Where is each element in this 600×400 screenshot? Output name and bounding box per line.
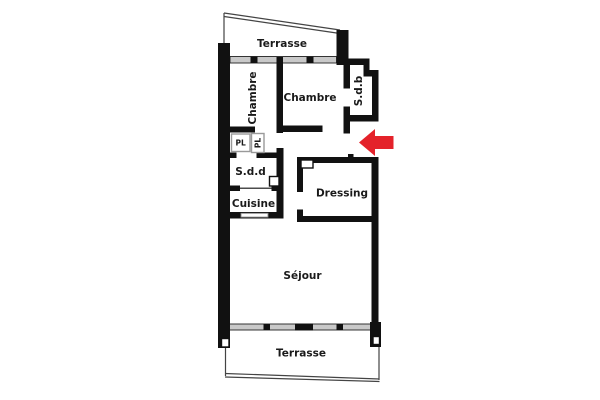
pillar-hole-left: [222, 339, 230, 348]
wall-cuisine-top-seg1: [230, 186, 240, 192]
wall-sdb-left-upper: [344, 65, 351, 89]
room-label-terrasse-top: Terrasse: [257, 38, 307, 50]
room-label-chambre-right: Chambre: [283, 92, 336, 104]
terrace-top-edge-line: [224, 13, 340, 30]
wall-sdd-top-seg2: [257, 153, 277, 159]
closet-label-pl-left: PL: [236, 139, 246, 148]
pillar-top-right: [337, 30, 349, 59]
window-band-top: [230, 57, 337, 64]
wall-sdd-top-seg1: [230, 153, 237, 159]
floor-plan-drawing: Terrasse Chambre Chambre S.d.b PL PL S.d…: [0, 0, 600, 400]
room-label-sdd: S.d.d: [235, 166, 266, 178]
terrace-top-edge-line-inner: [224, 17, 340, 34]
closet-label-pl-right: PL: [254, 138, 263, 148]
wall-entry-stub: [344, 122, 351, 134]
wall-left-outer: [218, 43, 230, 348]
wall-right-outer: [372, 157, 379, 322]
pillar-hole-right: [373, 337, 380, 345]
window-mullion-wide: [295, 324, 313, 331]
wall-chambre-divider: [277, 57, 284, 133]
room-label-chambre-left: Chambre: [247, 71, 259, 124]
window-mullion: [264, 324, 271, 330]
window-mullion: [251, 57, 258, 64]
room-label-sejour: Séjour: [283, 270, 322, 282]
wall-chambre-right-bottom: [277, 126, 323, 133]
wall-dressing-bottom: [297, 216, 372, 222]
wall-dressing-top-nub: [348, 154, 354, 157]
wall-sdb-left-lower: [344, 107, 351, 122]
room-label-dressing: Dressing: [316, 188, 368, 200]
wall-opening-marker-dressing: [301, 160, 313, 168]
wall-sdb-right: [372, 70, 379, 122]
wall-opening-marker-cuisine: [241, 213, 268, 217]
room-label-cuisine: Cuisine: [232, 198, 275, 210]
room-label-terrasse-bottom: Terrasse: [276, 348, 326, 360]
window-mullion: [337, 324, 344, 330]
entrance-arrow-icon: [359, 129, 394, 156]
floor-plan-canvas: Terrasse Chambre Chambre S.d.b PL PL S.d…: [0, 0, 600, 400]
duct-marker-sdd: [270, 177, 280, 187]
room-label-sdb: S.d.b: [353, 75, 365, 106]
wall-chambre-left-bottom: [227, 127, 255, 133]
window-mullion: [307, 57, 314, 64]
